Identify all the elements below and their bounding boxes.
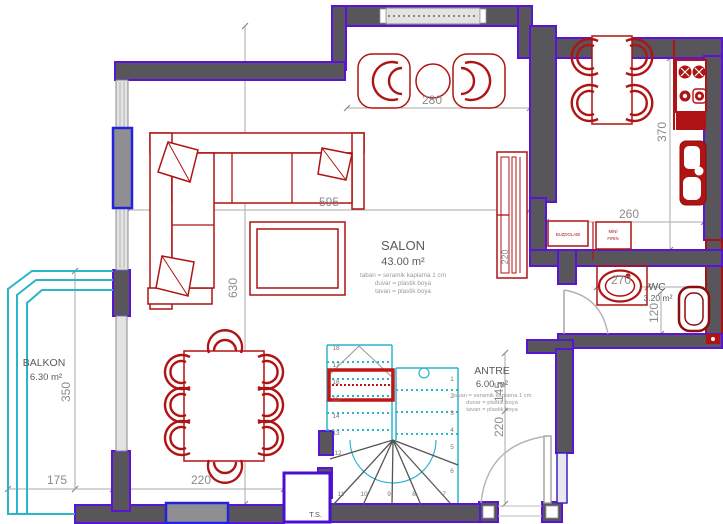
stair-step-number: 6 — [450, 468, 454, 475]
dim-slide-door: 220 — [500, 249, 510, 264]
balkon-name: BALKON — [23, 357, 66, 369]
fridge-label: BUZDOLABI — [556, 232, 580, 237]
toilet — [679, 287, 709, 331]
stair-step-number: 18 — [332, 345, 340, 352]
stair-step-number: 14 — [332, 413, 340, 420]
entrance-door-leaf — [544, 436, 551, 503]
dim-armchair-group: 280 — [422, 93, 442, 107]
wc-area: 3.20 m² — [644, 293, 673, 303]
dim-counter-width: 260 — [619, 207, 639, 221]
wc-name: WC — [648, 281, 666, 293]
dim-wc-width: 270 — [611, 273, 631, 287]
wc-corner-marker-dot — [711, 337, 715, 341]
dim-antre-lower: 220 — [492, 417, 506, 437]
salon-spec2: duvar = plastik boya — [375, 280, 432, 287]
window-left-blue — [113, 128, 132, 208]
antre-spec3: tavan = plastik boya — [466, 407, 518, 413]
wall-antre-right — [556, 349, 573, 453]
window-bottom-blue — [166, 503, 228, 523]
ts-shaft-label: T.S. — [309, 510, 322, 519]
balcony-pier-lower — [112, 451, 130, 511]
wall-wc-left-pier — [558, 250, 576, 284]
stair-step-number: 5 — [450, 444, 454, 451]
stair-step-number: 17 — [332, 362, 340, 369]
entry-side-frame — [557, 453, 567, 503]
oven-label-line1: MİNİ — [608, 229, 617, 234]
floor-plan-page: BUZDOLABI MİNİ FIRIN — [0, 0, 723, 524]
armchair-right — [453, 54, 505, 108]
floor-plan-drawing: BUZDOLABI MİNİ FIRIN — [0, 0, 723, 524]
stove — [676, 60, 706, 130]
stair-pier-upper — [319, 431, 333, 455]
stair-step-number: 3 — [450, 410, 454, 417]
stair-step-number: 10 — [360, 491, 368, 498]
ts-shaft: T.S. — [284, 473, 330, 522]
dim-wc-depth: 120 — [647, 303, 661, 323]
oven-label-line2: FIRIN — [607, 236, 618, 241]
wall-top-connector — [332, 6, 346, 70]
stair-step-number: 11 — [338, 491, 345, 498]
wall-wc-bottom — [558, 334, 722, 348]
stair-step-number: 12 — [334, 450, 342, 457]
salon-name: SALON — [381, 238, 425, 253]
dim-kitchen-depth: 370 — [655, 122, 669, 142]
balcony-pier-upper — [113, 270, 130, 316]
stair-step-number: 4 — [450, 427, 454, 434]
balkon-area: 6.30 m² — [30, 372, 62, 383]
dim-salon-depth: 630 — [226, 278, 240, 298]
stair-step-number: 13 — [332, 430, 340, 437]
stair-step-number: 9 — [387, 491, 391, 498]
stair-step-number: 16 — [332, 379, 340, 386]
armchair-left — [358, 54, 410, 108]
stair-step-number: 7 — [442, 491, 446, 498]
sofa-pillow — [318, 148, 352, 180]
dim-salon-width: 595 — [319, 195, 339, 209]
dim-balkon-depth: 350 — [59, 382, 73, 402]
antre-area: 6.00 m² — [476, 379, 508, 390]
dim-balkon-width: 175 — [47, 473, 67, 487]
window-left-lower — [116, 316, 127, 451]
antre-name: ANTRE — [474, 365, 510, 377]
salon-spec1: taban = seramik kaplama 1 cm — [360, 272, 446, 279]
dining-table — [184, 351, 264, 461]
coffee-table — [250, 222, 345, 295]
antre-spec2: duvar = plastik boya — [466, 400, 518, 406]
kitchen-sink — [680, 141, 706, 205]
wall-salon-kitchen — [530, 26, 556, 202]
stair-step-number: 8 — [412, 491, 416, 498]
stove-base — [676, 112, 706, 130]
dim-dining-width: 220 — [191, 473, 211, 487]
stair-step-number: 15 — [332, 396, 340, 403]
salon-spec3: tavan = plastik boya — [375, 288, 431, 295]
fridge-box: BUZDOLABI — [548, 221, 588, 246]
kitchen-table — [592, 36, 632, 124]
wall-antre-bottom — [330, 504, 480, 522]
salon-area: 43.00 m² — [381, 256, 425, 268]
wall-top-left — [115, 62, 345, 80]
stair-step-number: 1 — [450, 376, 454, 383]
antre-spec1: taban = seramik kaplama 1 cm — [452, 393, 531, 399]
